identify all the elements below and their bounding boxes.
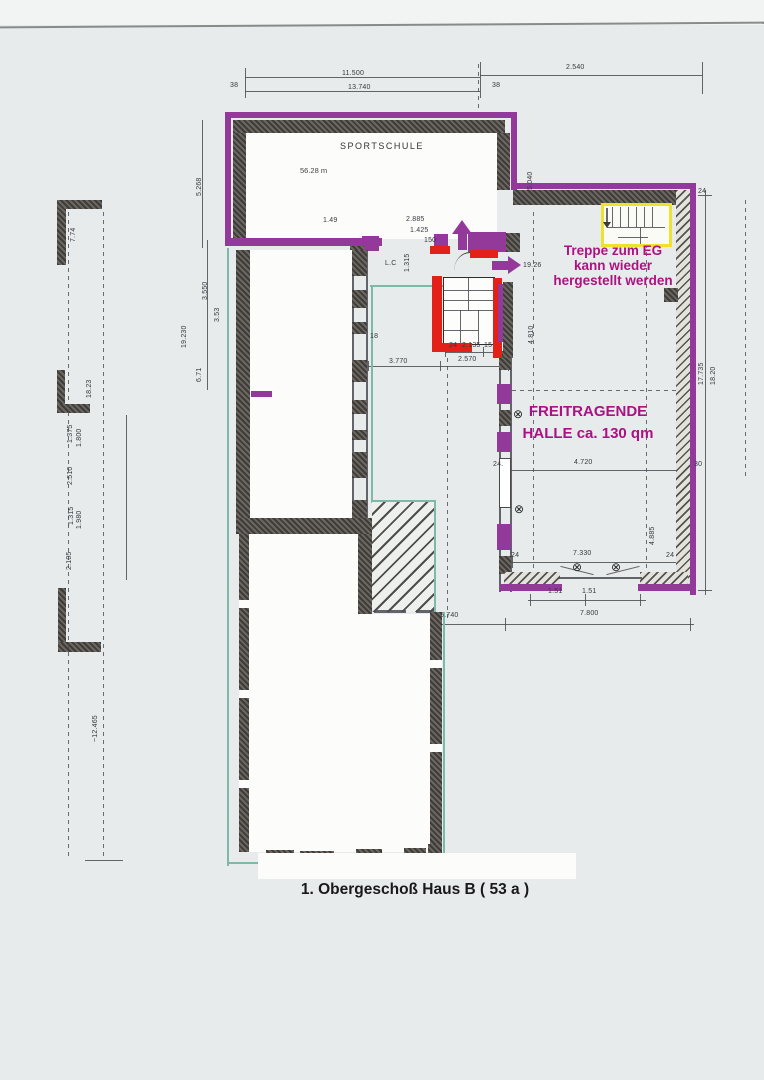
column-symbol: ⊗: [572, 561, 582, 573]
column-symbol: ⊗: [513, 408, 523, 420]
column-symbol: ⊗: [611, 561, 621, 573]
symbol-layer: ⊗⊗⊗⊗: [0, 0, 764, 1080]
scanned-floorplan-page: SPORTSCHULE 56.28 m: [0, 0, 764, 1080]
column-symbol: ⊗: [514, 503, 524, 515]
